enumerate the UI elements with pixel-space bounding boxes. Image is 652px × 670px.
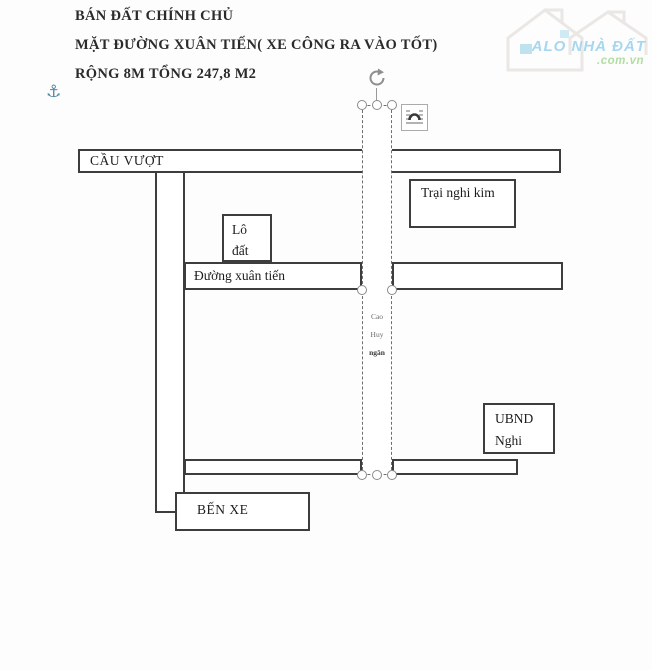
wrap-text-icon [405,108,424,127]
owner-name-text: Cao Huy ngân [363,308,391,362]
owner-line1: Cao [363,308,391,326]
handle-bottom-middle[interactable] [372,470,382,480]
committee-box[interactable]: UBND Nghi [483,403,555,454]
overpass-label: CẦU VƯỢT [80,151,559,169]
rotate-handle-icon[interactable] [365,66,389,95]
object-anchor-icon[interactable]: ⚓ [46,82,61,102]
handle-middle-left[interactable] [357,285,367,295]
owner-line2: Huy [363,326,391,344]
plot-label-line1: Lô [224,216,270,240]
overpass-box[interactable]: CẦU VƯỢT [78,149,561,173]
road-xuan-tien-left[interactable]: Đường xuân tiến [184,262,362,290]
bus-station-label: BẾN XE [177,494,308,518]
camp-label: Trại nghi kim [411,181,514,201]
committee-label-line2: Nghi [485,430,553,452]
bus-station-box[interactable]: BẾN XE [175,492,310,531]
vertical-road-bar[interactable] [155,171,185,513]
layout-options-button[interactable] [401,104,428,131]
document-canvas: BÁN ĐẤT CHÍNH CHỦ MẶT ĐƯỜNG XUÂN TIẾN( X… [0,0,652,670]
plot-box[interactable]: Lô đất [222,214,272,262]
handle-top-left[interactable] [357,100,367,110]
handle-bottom-right[interactable] [387,470,397,480]
handle-bottom-left[interactable] [357,470,367,480]
listing-title: BÁN ĐẤT CHÍNH CHỦ [75,2,437,31]
camp-box[interactable]: Trại nghi kim [409,179,516,228]
committee-label-line1: UBND [485,405,553,430]
bottom-road-left[interactable] [184,459,362,475]
watermark-logo: ALO NHÀ ĐẤT .com.vn [500,0,652,80]
road-label: Đường xuân tiến [186,264,360,284]
listing-road-info: MẶT ĐƯỜNG XUÂN TIẾN( XE CÔNG RA VÀO TỐT) [75,31,437,60]
watermark-brand-text: ALO NHÀ ĐẤT [532,38,646,55]
handle-middle-right[interactable] [387,285,397,295]
road-xuan-tien-right[interactable] [392,262,563,290]
watermark-domain-text: .com.vn [597,55,644,67]
plot-label-line2: đất [224,240,270,261]
bottom-road-right[interactable] [392,459,518,475]
owner-line3: ngân [363,344,391,362]
handle-top-right[interactable] [387,100,397,110]
handle-top-middle[interactable] [372,100,382,110]
